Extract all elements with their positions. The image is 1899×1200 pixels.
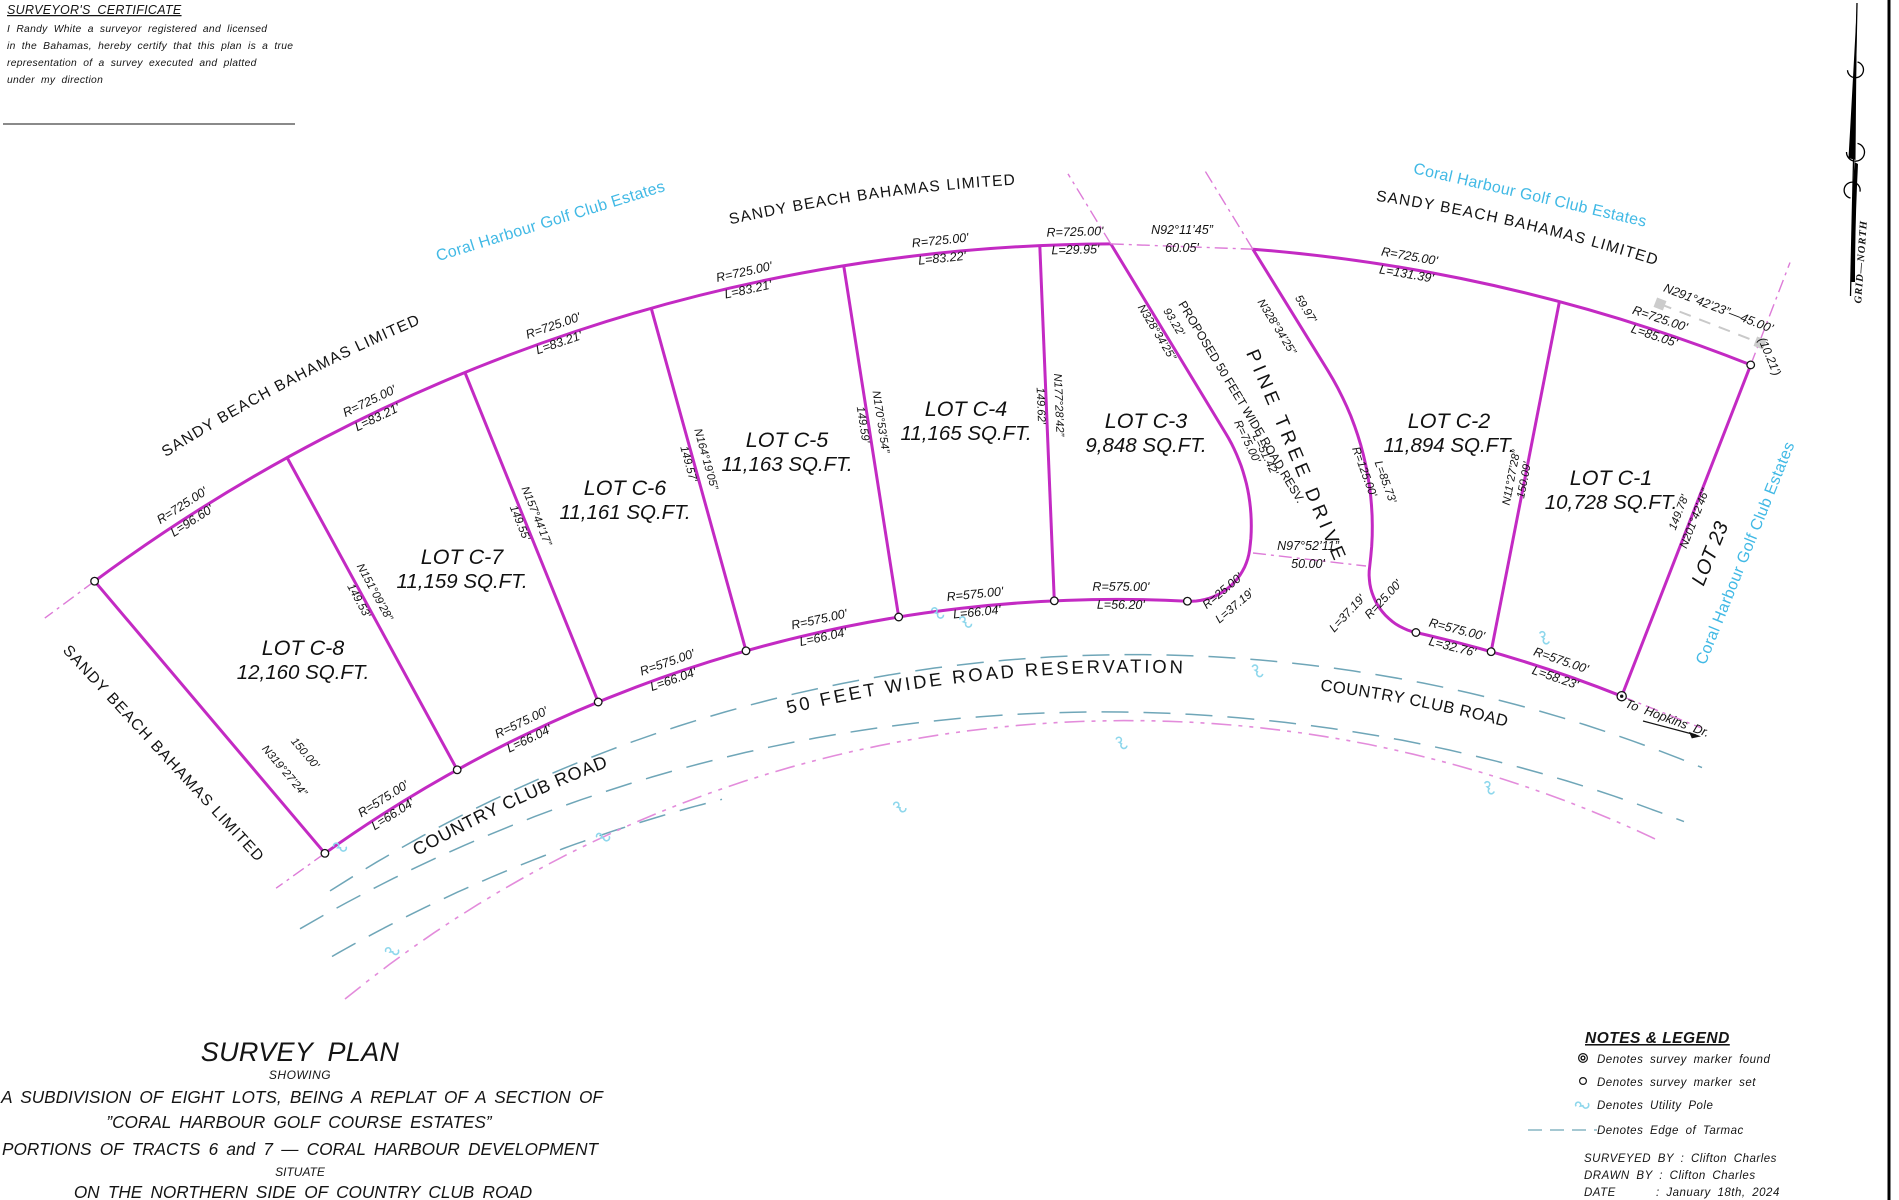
svg-text:R=575.00': R=575.00': [1092, 580, 1150, 594]
svg-text:LOT C-6: LOT C-6: [584, 476, 666, 500]
svg-text:SURVEY PLAN: SURVEY PLAN: [201, 1037, 400, 1067]
svg-text:LOT C-3: LOT C-3: [1105, 409, 1187, 433]
svg-text:N177°28’42”: N177°28’42”: [1051, 373, 1066, 438]
svg-text:representation of a survey exe: representation of a survey executed and …: [7, 58, 257, 69]
svg-text:R=725.00': R=725.00': [1046, 224, 1104, 239]
svg-text:Denotes survey marker found: Denotes survey marker found: [1597, 1054, 1770, 1066]
svg-text:11,159 SQ.FT.: 11,159 SQ.FT.: [396, 570, 527, 593]
svg-text:PORTIONS OF TRACTS 6 and 7 — C: PORTIONS OF TRACTS 6 and 7 — CORAL HARBO…: [2, 1139, 599, 1159]
svg-text:L=56.20': L=56.20': [1097, 598, 1146, 612]
svg-text:I Randy White a surveyor regis: I Randy White a surveyor registered and …: [7, 24, 267, 35]
svg-text:”CORAL HARBOUR GOLF COURSE EST: ”CORAL HARBOUR GOLF COURSE ESTATES”: [106, 1112, 492, 1132]
svg-text:Denotes Edge of Tarmac: Denotes Edge of Tarmac: [1597, 1125, 1744, 1137]
svg-text:LOT C-2: LOT C-2: [1408, 409, 1490, 433]
svg-text:LOT C-5: LOT C-5: [746, 428, 829, 452]
svg-text:DRAWN BY : Clifton Charles: DRAWN BY : Clifton Charles: [1584, 1170, 1756, 1182]
svg-text:50.00': 50.00': [1291, 557, 1325, 571]
svg-text:12,160 SQ.FT.: 12,160 SQ.FT.: [237, 661, 370, 684]
svg-text:SURVEYED BY : Clifton Charles: SURVEYED BY : Clifton Charles: [1584, 1153, 1777, 1165]
svg-text:DATE : January 18th, 202: DATE : January 18th, 2024: [1584, 1187, 1780, 1199]
svg-text:LOT C-8: LOT C-8: [262, 636, 344, 660]
svg-text:SURVEYOR'S CERTIFICATE: SURVEYOR'S CERTIFICATE: [7, 3, 182, 17]
svg-text:N92°11’45”: N92°11’45”: [1151, 223, 1214, 237]
svg-text:L=29.95': L=29.95': [1051, 242, 1100, 257]
svg-text:SHOWING: SHOWING: [269, 1068, 331, 1082]
svg-text:11,163 SQ.FT.: 11,163 SQ.FT.: [721, 453, 852, 476]
svg-text:11,161 SQ.FT.: 11,161 SQ.FT.: [559, 501, 690, 524]
svg-text:Denotes survey marker set: Denotes survey marker set: [1597, 1077, 1756, 1089]
svg-text:10,728 SQ.FT.: 10,728 SQ.FT.: [1545, 491, 1678, 514]
svg-text:LOT C-7: LOT C-7: [421, 545, 504, 569]
svg-text:11,165 SQ.FT.: 11,165 SQ.FT.: [900, 422, 1031, 445]
svg-text:SITUATE: SITUATE: [275, 1165, 326, 1179]
svg-text:under my direction: under my direction: [7, 75, 103, 86]
svg-text:LOT C-4: LOT C-4: [925, 397, 1007, 421]
svg-text:NOTES & LEGEND: NOTES & LEGEND: [1585, 1030, 1730, 1047]
svg-text:11,894 SQ.FT.: 11,894 SQ.FT.: [1383, 434, 1514, 457]
svg-text:Denotes Utility Pole: Denotes Utility Pole: [1597, 1100, 1713, 1112]
svg-text:A SUBDIVISION OF EIGHT LOTS, B: A SUBDIVISION OF EIGHT LOTS, BEING A REP…: [0, 1087, 604, 1107]
svg-text:60.05': 60.05': [1165, 241, 1199, 255]
svg-text:149.62': 149.62': [1034, 387, 1047, 425]
svg-text:LOT C-1: LOT C-1: [1570, 466, 1652, 490]
svg-text:ON THE NORTHERN SIDE OF COUNTR: ON THE NORTHERN SIDE OF COUNTRY CLUB ROA…: [74, 1182, 532, 1200]
svg-text:9,848 SQ.FT.: 9,848 SQ.FT.: [1085, 434, 1206, 457]
svg-text:in the Bahamas, hereby certify: in the Bahamas, hereby certify that this…: [7, 41, 293, 52]
